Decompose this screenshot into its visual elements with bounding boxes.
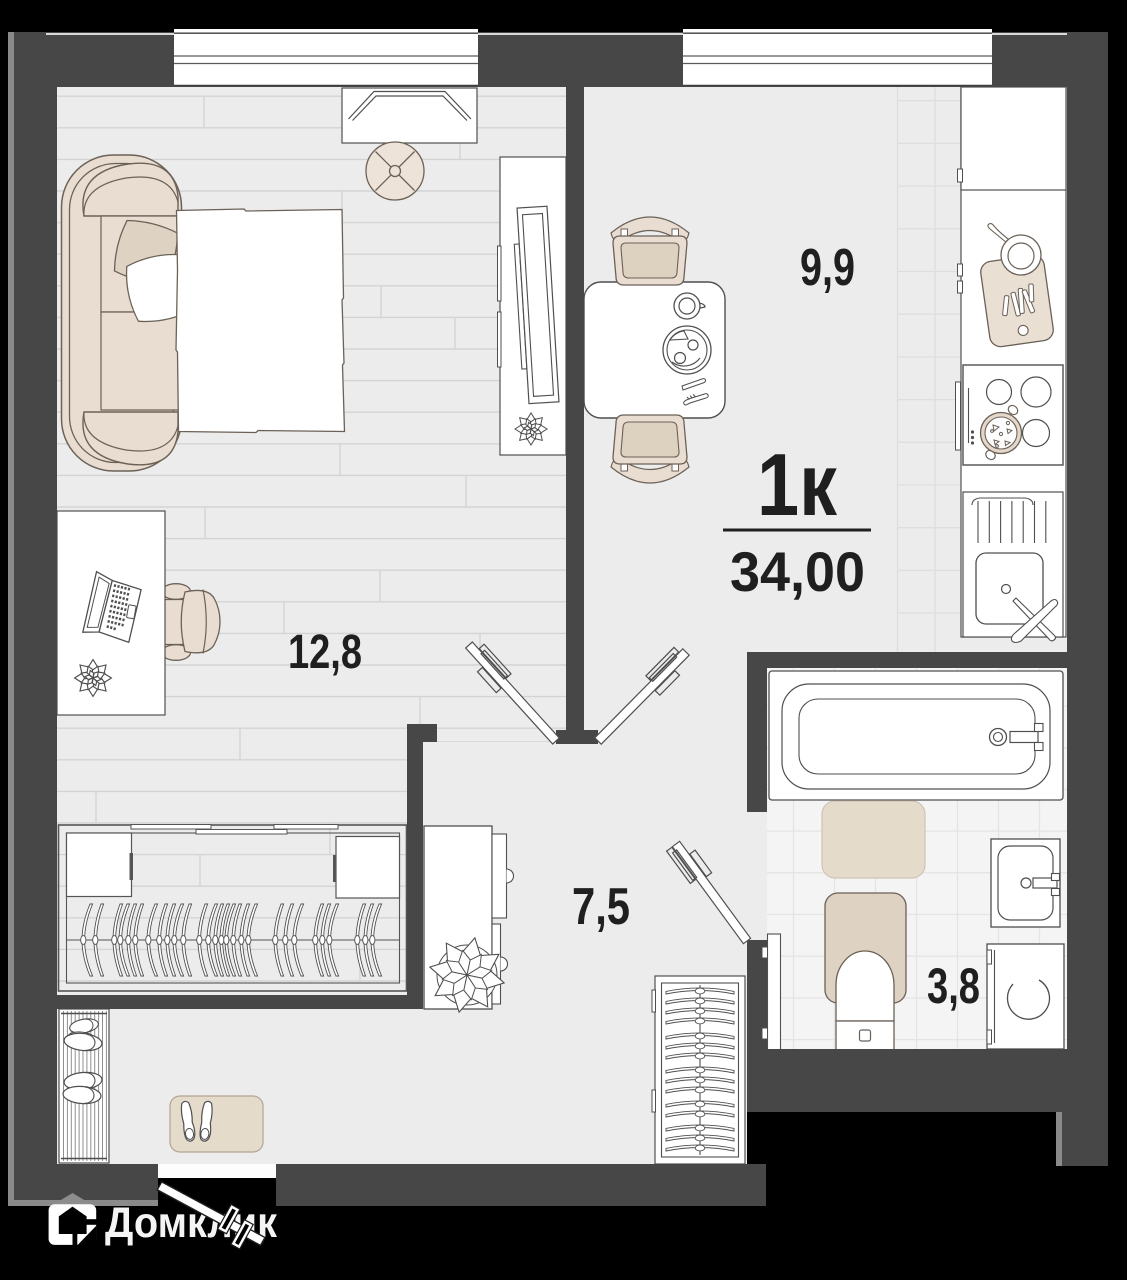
svg-text:12,8: 12,8 [288,626,362,679]
svg-text:9,9: 9,9 [800,239,855,297]
svg-text:7,5: 7,5 [572,878,630,936]
svg-text:3,8: 3,8 [927,958,980,1014]
svg-text:1к: 1к [757,435,838,534]
svg-text:34,00: 34,00 [730,540,865,603]
